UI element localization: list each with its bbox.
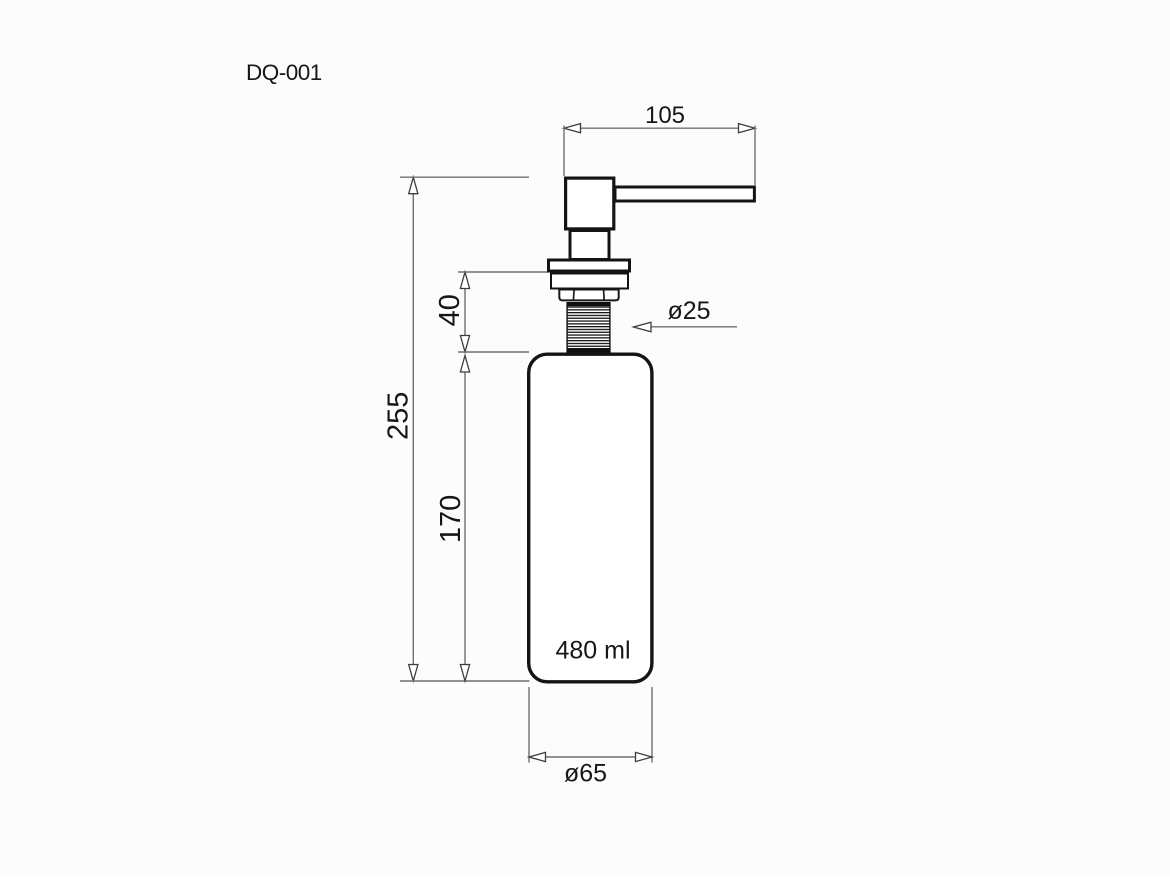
svg-text:40: 40 [434,294,466,326]
svg-text:255: 255 [383,392,415,440]
svg-text:105: 105 [645,102,685,129]
svg-text:170: 170 [435,495,467,543]
svg-text:480 ml: 480 ml [555,637,630,665]
svg-text:ø65: ø65 [564,760,607,788]
svg-text:DQ-001: DQ-001 [246,60,322,85]
svg-text:ø25: ø25 [668,297,711,325]
